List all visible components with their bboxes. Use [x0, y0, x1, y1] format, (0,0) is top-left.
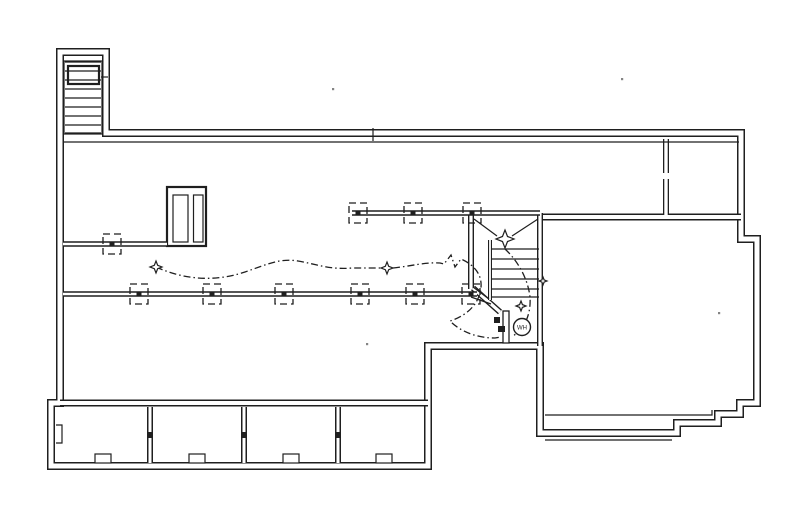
floor-plan: WH	[0, 0, 800, 526]
chimney-flue-right	[194, 195, 204, 242]
pier-anchor	[470, 211, 475, 216]
pier-anchor	[413, 292, 418, 297]
porch-pier-anchor	[335, 432, 341, 438]
pier-anchor	[110, 242, 115, 247]
speck	[718, 312, 720, 314]
stair-treads	[492, 249, 539, 297]
porch-pier-anchor	[241, 432, 247, 438]
porch-vent-notch	[189, 454, 205, 463]
bulkhead-treads	[65, 62, 101, 133]
porch-pier-anchor	[147, 432, 153, 438]
stair-corner-line-left	[474, 219, 497, 236]
speck	[332, 88, 334, 90]
pier-anchor	[282, 292, 287, 297]
pier-anchor	[411, 211, 416, 216]
water-heater-area: WH	[494, 311, 531, 343]
stair-corner-line-right	[512, 219, 538, 236]
light-fixture-diamond	[516, 301, 526, 311]
floor-plan-canvas: WH	[0, 0, 800, 526]
pier-anchor	[469, 292, 474, 297]
flue-anchor-1	[494, 317, 500, 323]
bulkhead-landing	[68, 66, 99, 84]
pier-anchor	[358, 292, 363, 297]
wiring-run-1	[156, 260, 381, 278]
porch-vent-notch	[376, 454, 392, 463]
light-fixture-diamond	[150, 261, 162, 273]
porch-left-pilaster	[56, 425, 62, 443]
chimney	[167, 187, 206, 246]
garage-inner-line	[545, 410, 712, 415]
light-fixture-diamond	[496, 230, 514, 248]
speck	[621, 78, 623, 80]
pier-anchor	[356, 211, 361, 216]
pier-anchor	[210, 292, 215, 297]
water-heater-label: WH	[517, 326, 527, 332]
porch-piers	[95, 407, 392, 463]
porch-vent-notch	[283, 454, 299, 463]
chimney-flue-left	[173, 195, 188, 242]
flue-anchor-2	[498, 326, 505, 332]
porch-vent-notch	[95, 454, 111, 463]
light-fixture-diamond	[381, 262, 393, 274]
pier-anchor	[137, 292, 142, 297]
speck	[366, 343, 368, 345]
